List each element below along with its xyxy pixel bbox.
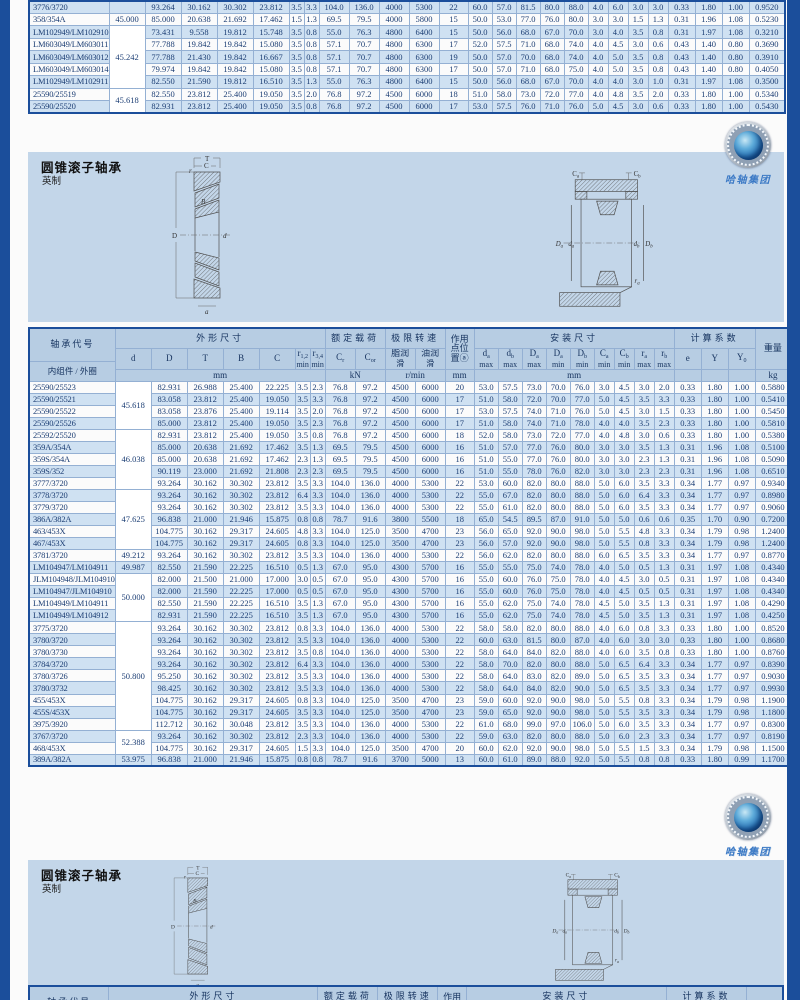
cell: 97.2 (355, 382, 385, 394)
cell: 67.0 (540, 76, 564, 88)
cell: 16.510 (259, 562, 295, 574)
cell: 1.80 (701, 634, 728, 646)
bearing-code: LM102949/LM102911 (29, 76, 109, 88)
cell: 93.264 (151, 490, 187, 502)
cell: 16 (445, 466, 474, 478)
cell: 54.5 (498, 514, 522, 526)
cell: 23.812 (259, 550, 295, 562)
cell: 30.162 (187, 550, 223, 562)
cell: 19.842 (217, 51, 253, 63)
cell: 58.0 (474, 658, 498, 670)
cell: 25.400 (217, 101, 253, 113)
cell: 0.5410 (755, 394, 791, 406)
cell: 3.0 (608, 13, 628, 25)
cell: 30.162 (187, 658, 223, 670)
cell: 21.500 (187, 574, 223, 586)
table-row: 3767/372052.38893.26430.16230.30223.8122… (29, 730, 791, 742)
cell: 30.302 (223, 670, 259, 682)
bearing-code: LM603049/LM603012 (29, 51, 109, 63)
cell: 0.6 (648, 38, 668, 50)
cell: 5.0 (594, 706, 614, 718)
bearing-code: 3778/3720 (29, 490, 115, 502)
cell: 67.0 (325, 610, 355, 622)
cell: 0.8520 (755, 622, 791, 634)
cell: 23.812 (187, 418, 223, 430)
cell: 51.0 (474, 454, 498, 466)
cell: 1.3 (654, 454, 674, 466)
cell: 0.8 (295, 514, 310, 526)
cell: 104.0 (325, 490, 355, 502)
svg-text:Db: Db (644, 241, 653, 249)
cell: 1.77 (701, 550, 728, 562)
cell: 30.302 (223, 730, 259, 742)
cell: 5300 (415, 634, 445, 646)
cell: 0.31 (668, 76, 695, 88)
cell: 85.000 (151, 454, 187, 466)
cell: 0.35 (674, 514, 701, 526)
cell: 3.5 (295, 610, 310, 622)
cell: 5.5 (614, 526, 634, 538)
cell: 30.302 (223, 478, 259, 490)
bearing-code: 358/354A (29, 13, 109, 25)
cell: 30.302 (223, 634, 259, 646)
table-row: 25592/2552046.03882.93123.81225.40019.05… (29, 430, 791, 442)
cell: 4700 (415, 694, 445, 706)
col-sub: rbmax (654, 348, 674, 370)
cell: 5700 (415, 610, 445, 622)
cell: 56.0 (474, 550, 498, 562)
cell: 1.3 (310, 442, 325, 454)
cell: 60.0 (468, 1, 492, 13)
cell: 98.0 (570, 538, 594, 550)
cell: 64.0 (498, 682, 522, 694)
cell: 4000 (385, 622, 415, 634)
cell: 3.3 (310, 670, 325, 682)
cell: 0.5340 (749, 88, 785, 100)
cell: 51.0 (474, 442, 498, 454)
cell: 5.5 (614, 706, 634, 718)
unit-label: kg (755, 370, 791, 382)
cell: 104.0 (325, 646, 355, 658)
cell: 1.5 (289, 13, 304, 25)
svg-text:D: D (172, 232, 177, 240)
cell: 55.0 (498, 466, 522, 478)
cell: 1.77 (701, 502, 728, 514)
cell: 65.0 (474, 514, 498, 526)
cell: 22.225 (223, 598, 259, 610)
col-sub: Y0 (728, 348, 755, 370)
cell: 93.264 (151, 478, 187, 490)
cell: 55.0 (474, 502, 498, 514)
cell: 81.5 (522, 634, 546, 646)
cell: 78.0 (570, 598, 594, 610)
cell: 1.77 (701, 682, 728, 694)
cell: 0.80 (722, 63, 749, 75)
cell: 89.5 (522, 514, 546, 526)
cell: 3.3 (310, 658, 325, 670)
cell: 19.842 (181, 38, 217, 50)
cell: 3.3 (654, 490, 674, 502)
bearing-code: JLM104948/JLM104910 (29, 574, 115, 586)
cell: 4000 (385, 634, 415, 646)
cell: 17.462 (259, 442, 295, 454)
cell: 1.08 (728, 442, 755, 454)
cell: 5.0 (594, 682, 614, 694)
bearing-code: 25590/25521 (29, 394, 115, 406)
cell: 82.550 (145, 88, 181, 100)
cell: 0.31 (674, 442, 701, 454)
cell: 3.3 (654, 694, 674, 706)
cell: 30.162 (187, 682, 223, 694)
cell: 1.00 (728, 622, 755, 634)
cell: 3.3 (310, 682, 325, 694)
cell: 0.8 (310, 430, 325, 442)
col-sub: Cr (325, 348, 355, 370)
cell: 57.1 (319, 38, 349, 50)
cell: 4700 (415, 706, 445, 718)
cell: 4.0 (588, 1, 608, 13)
cell: 57.1 (319, 51, 349, 63)
cell: 5700 (415, 574, 445, 586)
cell: 5.0 (594, 502, 614, 514)
cell: 82.931 (145, 101, 181, 113)
cell: 25.400 (223, 430, 259, 442)
col-group-rated-load: 额定载荷 (325, 328, 385, 348)
cell: 16 (445, 442, 474, 454)
cell: 4800 (379, 38, 409, 50)
cell: 21.590 (181, 76, 217, 88)
cell: 136.0 (355, 646, 385, 658)
cell: 88.0 (546, 754, 570, 766)
cell: 1.80 (701, 382, 728, 394)
cell: 79.5 (349, 13, 379, 25)
cell: 90.0 (570, 682, 594, 694)
cell: 19.050 (259, 418, 295, 430)
cell: 21.590 (187, 562, 223, 574)
cell: 6400 (409, 26, 439, 38)
col-sub: D (151, 348, 187, 370)
bearing-mounting-diagram: Ca Cb Dada dbDb ra (538, 170, 663, 316)
cell: 57.5 (492, 101, 516, 113)
cell: 17 (439, 63, 468, 75)
cell: 30.302 (223, 682, 259, 694)
cell: 6000 (415, 406, 445, 418)
cell: 88.0 (570, 490, 594, 502)
cell: 1.77 (701, 670, 728, 682)
cell: 16.510 (253, 76, 289, 88)
cell: 21.590 (187, 610, 223, 622)
cell: 1.08 (728, 454, 755, 466)
cell: 30.162 (181, 1, 217, 13)
cell: 21.946 (223, 514, 259, 526)
cell: 22 (445, 502, 474, 514)
bearing-code: 463/453X (29, 526, 115, 538)
cell: 3.3 (654, 622, 674, 634)
cell: 3.5 (289, 1, 304, 13)
bearing-code: 3780/3732 (29, 682, 115, 694)
cell: 0.43 (668, 63, 695, 75)
cell: 3.5 (295, 394, 310, 406)
cell: 70.0 (516, 51, 540, 63)
col-sub: r3,4min (310, 348, 325, 370)
cell: 1.77 (701, 730, 728, 742)
cell: 50.0 (468, 26, 492, 38)
cell: 1.80 (701, 754, 728, 766)
cell: 58.0 (498, 430, 522, 442)
cell: 3.3 (310, 634, 325, 646)
col-group-dimensions: 外形尺寸 (109, 986, 318, 1000)
cell: 16 (445, 454, 474, 466)
cell: 20 (445, 382, 474, 394)
cell: 96.838 (151, 514, 187, 526)
bearing-code: 3775/3720 (29, 622, 115, 634)
cell: 90.0 (546, 742, 570, 754)
cell: 26.988 (187, 382, 223, 394)
cell: 0.4340 (755, 574, 791, 586)
svg-text:r: r (189, 167, 192, 175)
bearing-balls-icon (727, 796, 769, 838)
table-row: 358/354A45.00085.00020.63821.69217.4621.… (29, 13, 785, 25)
cell: 74.0 (546, 610, 570, 622)
cell: 1.08 (722, 76, 749, 88)
cell: 79.5 (355, 442, 385, 454)
cell: 3.5 (289, 26, 304, 38)
bearing-ring-icon (725, 122, 771, 168)
cell: 2.3 (310, 466, 325, 478)
cell: 63.0 (498, 730, 522, 742)
col-group-factors: 计算系数 (674, 328, 755, 348)
col-sub: 油润滑 (415, 348, 445, 370)
cell: 6.0 (614, 718, 634, 730)
col-group-rated-load: 额定载荷 (318, 986, 378, 1000)
cell: 0.33 (674, 634, 701, 646)
cell: 0.8 (654, 754, 674, 766)
cell: 0.5450 (755, 406, 791, 418)
col-sub: Camin (594, 348, 614, 370)
cell: 59.0 (474, 706, 498, 718)
cell: 21.000 (223, 574, 259, 586)
cell: 3.3 (654, 730, 674, 742)
cell: 76.8 (325, 382, 355, 394)
cell: 3.5 (295, 382, 310, 394)
cell: 51.0 (474, 466, 498, 478)
cell: 4.0 (614, 418, 634, 430)
cell: 53.0 (474, 382, 498, 394)
svg-text:r: r (184, 875, 187, 881)
cell: 80.0 (546, 634, 570, 646)
cell: 3.3 (654, 538, 674, 550)
cell: 0.31 (674, 610, 701, 622)
cell: 91.6 (355, 754, 385, 766)
cell: 22 (445, 646, 474, 658)
cell: 77.0 (522, 454, 546, 466)
bearing-table-partial-bottom: 轴承代号内组件 / 外圈外形尺寸额定载荷极限转速作用点位置ⓐ安装尺寸计算系数重量… (28, 985, 784, 1000)
cell: 78.0 (570, 586, 594, 598)
cell: 3.5 (289, 101, 304, 113)
cell: 3.5 (295, 418, 310, 430)
cell: 0.34 (674, 718, 701, 730)
svg-text:B: B (201, 198, 206, 206)
cell: 0.8 (295, 694, 310, 706)
cell: 82.0 (546, 682, 570, 694)
cell: 69.5 (325, 454, 355, 466)
cell: 6.0 (614, 622, 634, 634)
cell: 104.0 (325, 526, 355, 538)
cell: 76.8 (325, 406, 355, 418)
cell: 55.0 (474, 490, 498, 502)
cell: 3.0 (594, 454, 614, 466)
cell: 22 (445, 634, 474, 646)
page-frame-left (0, 0, 10, 1000)
cell: 1.96 (701, 466, 728, 478)
cell: 4.0 (588, 38, 608, 50)
cell: 3500 (385, 526, 415, 538)
cell: 23.812 (253, 1, 289, 13)
cell: 3.5 (634, 478, 654, 490)
cell: 1.00 (728, 634, 755, 646)
cell: 104.0 (325, 682, 355, 694)
cell: 3.5 (628, 88, 648, 100)
cell: 3.0 (634, 406, 654, 418)
cell: 73.0 (522, 382, 546, 394)
cell: 67.0 (325, 562, 355, 574)
cell: 21.946 (223, 754, 259, 766)
col-bearing-code: 轴承代号内组件 / 外圈 (29, 986, 109, 1000)
cell: 3.0 (654, 634, 674, 646)
cell: 5.0 (594, 526, 614, 538)
cell: 0.31 (668, 13, 695, 25)
cell: 0.8 (295, 622, 310, 634)
cell: 1.96 (695, 13, 722, 25)
cell: 4700 (415, 742, 445, 754)
cell: 3.0 (614, 466, 634, 478)
cell: 70.0 (564, 76, 588, 88)
cell: 23.000 (187, 466, 223, 478)
cell: 24.605 (259, 694, 295, 706)
cell: 1.97 (701, 562, 728, 574)
table-row: 3781/372049.21293.26430.16230.30223.8123… (29, 550, 791, 562)
cell: 82.000 (151, 586, 187, 598)
cell: 71.0 (546, 406, 570, 418)
cell: 97.2 (355, 406, 385, 418)
cell: 4.0 (588, 76, 608, 88)
cell: 23.812 (259, 634, 295, 646)
cell: 79.974 (145, 63, 181, 75)
cell: 5300 (415, 622, 445, 634)
cell: 4300 (385, 598, 415, 610)
cell: 21.430 (181, 51, 217, 63)
cell: 3.3 (310, 490, 325, 502)
cell: 55.0 (474, 574, 498, 586)
cell: 4.0 (594, 622, 614, 634)
cell: 0.34 (674, 742, 701, 754)
cell: 3.0 (628, 101, 648, 113)
cell: 4800 (379, 76, 409, 88)
cell: 76.8 (325, 430, 355, 442)
cell: 15 (439, 26, 468, 38)
svg-text:Da: Da (555, 241, 564, 249)
cell: 0.8 (304, 51, 319, 63)
cell: 3.3 (654, 550, 674, 562)
unit-label: mm (445, 370, 474, 382)
cell: 3.5 (295, 682, 310, 694)
cell: 53.0 (474, 478, 498, 490)
cell: 5.0 (594, 742, 614, 754)
cell: 17.462 (259, 454, 295, 466)
cell: 90.0 (546, 706, 570, 718)
cell: 104.0 (325, 694, 355, 706)
cell: 0.8 (634, 538, 654, 550)
cell: 51.0 (474, 394, 498, 406)
cell: 6.0 (614, 490, 634, 502)
cell: 24.605 (259, 742, 295, 754)
cell: 5.0 (608, 63, 628, 75)
cell: 98.0 (570, 706, 594, 718)
bearing-code: 3781/3720 (29, 550, 115, 562)
cell: 5.0 (614, 598, 634, 610)
cell: 82.931 (151, 382, 187, 394)
cell: 16 (445, 610, 474, 622)
cell: 125.0 (355, 526, 385, 538)
cell: 3.5 (634, 610, 654, 622)
cell: 2.0 (648, 88, 668, 100)
cell: 76.0 (564, 101, 588, 113)
cell: 30.162 (187, 730, 223, 742)
table-row: 25590/2551945.61882.55023.81225.40019.05… (29, 88, 785, 100)
cell: 3.0 (628, 38, 648, 50)
bore-diameter: 46.038 (115, 430, 151, 490)
cell: 3.5 (634, 502, 654, 514)
cell: 29.317 (223, 742, 259, 754)
cell: 29.317 (223, 706, 259, 718)
col-sub: 脂润滑 (385, 348, 415, 370)
cell: 23 (445, 694, 474, 706)
cell: 64.0 (498, 670, 522, 682)
cell: 95.0 (355, 586, 385, 598)
cell: 3.3 (310, 526, 325, 538)
cell: 80.0 (570, 454, 594, 466)
section-panel-1: 圆锥滚子轴承 英制 T C r D d B a Ca Cb Dada dbDb … (28, 152, 784, 322)
cell: 1.08 (728, 586, 755, 598)
cell: 3.3 (654, 658, 674, 670)
cell: 69.5 (325, 442, 355, 454)
cell: 30.162 (187, 646, 223, 658)
cell: 0.8680 (755, 634, 791, 646)
cell: 76.8 (325, 418, 355, 430)
cell: 1.08 (728, 610, 755, 622)
cell: 3.0 (634, 634, 654, 646)
cell: 1.70 (701, 514, 728, 526)
cell: 5.0 (614, 514, 634, 526)
cell: 0.31 (674, 598, 701, 610)
cell: 3.0 (588, 13, 608, 25)
cell: 3500 (385, 694, 415, 706)
cell: 0.8300 (755, 718, 791, 730)
cell: 0.33 (674, 430, 701, 442)
cell: 6.4 (295, 490, 310, 502)
cell: 15 (439, 13, 468, 25)
cell: 22.225 (223, 610, 259, 622)
cell: 73.431 (145, 26, 181, 38)
bearing-code: LM104949/LM104912 (29, 610, 115, 622)
cell: 95.0 (355, 574, 385, 586)
cell: 1.5 (654, 406, 674, 418)
cell: 3.3 (654, 394, 674, 406)
cell: 1.3 (310, 562, 325, 574)
cell: 5.0 (594, 406, 614, 418)
cell: 0.6510 (755, 466, 791, 478)
cell: 76.8 (325, 394, 355, 406)
